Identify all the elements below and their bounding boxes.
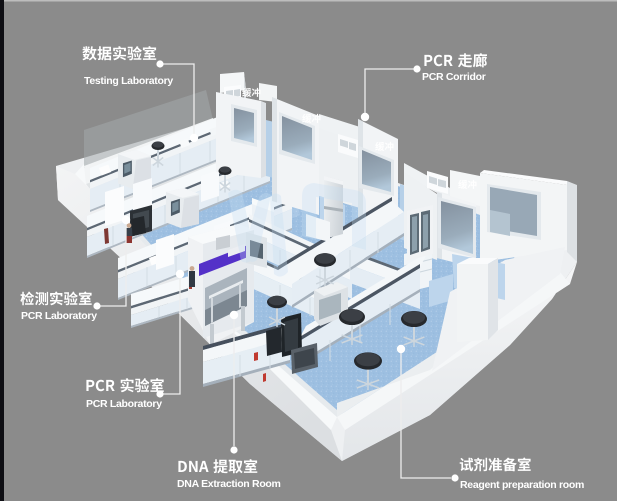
- svg-text:PCR Laboratory: PCR Laboratory: [86, 398, 162, 410]
- svg-text:DNA Extraction Room: DNA Extraction Room: [177, 478, 281, 490]
- svg-text:Reagent preparation room: Reagent preparation room: [460, 479, 584, 491]
- svg-text:PCR Laboratory: PCR Laboratory: [21, 310, 97, 322]
- svg-text:PCR Corridor: PCR Corridor: [422, 71, 486, 83]
- svg-text:Testing Laboratory: Testing Laboratory: [84, 75, 173, 87]
